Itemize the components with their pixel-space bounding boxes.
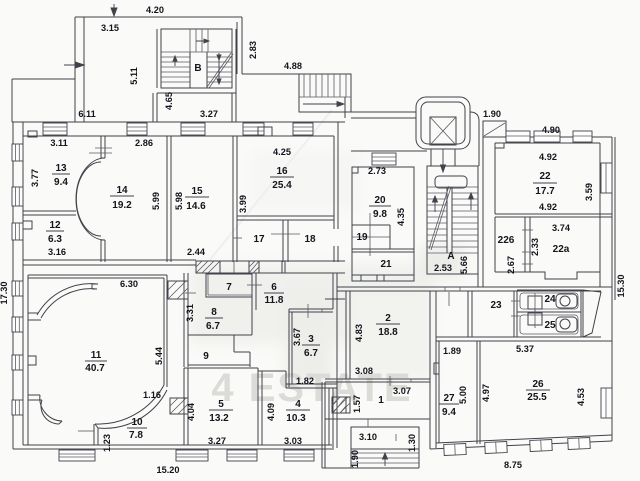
svg-text:2.73: 2.73 [368,166,386,176]
svg-text:1.23: 1.23 [102,434,112,452]
svg-text:B: B [194,63,201,74]
svg-text:25.4: 25.4 [272,180,292,191]
svg-text:19.2: 19.2 [112,200,132,211]
svg-text:3.07: 3.07 [393,386,411,396]
svg-text:2.67: 2.67 [506,256,516,274]
svg-text:3.67: 3.67 [292,328,302,346]
svg-text:27: 27 [443,393,455,404]
svg-text:3.74: 3.74 [552,223,571,233]
svg-text:2: 2 [385,313,391,324]
svg-text:4.53: 4.53 [576,388,586,406]
svg-text:8: 8 [211,307,217,318]
svg-text:5.99: 5.99 [151,192,161,210]
svg-text:4.92: 4.92 [539,202,557,212]
svg-text:4.65: 4.65 [164,92,174,110]
svg-text:40.7: 40.7 [85,363,105,374]
svg-text:3.08: 3.08 [355,366,373,376]
svg-text:4.20: 4.20 [146,5,164,15]
svg-text:6.30: 6.30 [120,279,138,289]
svg-text:15.30: 15.30 [616,275,626,298]
svg-text:A: A [447,251,454,262]
svg-text:5.98: 5.98 [174,192,184,210]
svg-text:3.11: 3.11 [50,138,67,148]
svg-text:25: 25 [544,320,556,331]
svg-text:21: 21 [380,259,392,270]
svg-text:1.16: 1.16 [143,390,161,400]
svg-text:3.16: 3.16 [48,247,66,257]
svg-text:4.92: 4.92 [539,152,557,162]
svg-text:3.15: 3.15 [101,23,119,33]
svg-text:3.31: 3.31 [185,304,195,322]
svg-text:4.04: 4.04 [186,402,196,421]
svg-text:3.77: 3.77 [30,169,40,187]
svg-text:3.99: 3.99 [238,195,248,213]
svg-text:3.03: 3.03 [284,436,302,446]
svg-text:226: 226 [498,235,515,246]
svg-text:1.90: 1.90 [350,450,360,468]
svg-text:4.97: 4.97 [481,384,491,402]
svg-text:1.57: 1.57 [352,395,362,413]
svg-text:22a: 22a [553,244,570,255]
svg-text:4.25: 4.25 [273,147,291,157]
svg-text:4.83: 4.83 [354,324,364,342]
svg-text:9.8: 9.8 [373,209,387,220]
svg-text:5.00: 5.00 [458,386,468,404]
svg-text:3.10: 3.10 [359,432,377,442]
svg-text:2.83: 2.83 [248,41,258,59]
svg-text:13.2: 13.2 [209,413,229,424]
svg-text:9.4: 9.4 [54,177,68,188]
svg-text:6.11: 6.11 [78,109,95,119]
svg-text:17.7: 17.7 [535,186,555,197]
svg-text:2.33: 2.33 [530,238,540,256]
svg-text:4.90: 4.90 [542,125,560,135]
svg-text:25.5: 25.5 [527,392,547,403]
svg-text:16: 16 [276,166,288,177]
svg-text:2.44: 2.44 [187,247,206,257]
svg-text:19: 19 [356,232,368,243]
svg-text:4: 4 [295,399,301,410]
svg-text:6.7: 6.7 [304,348,318,359]
svg-text:1: 1 [378,395,384,406]
svg-text:8.75: 8.75 [504,460,522,470]
svg-text:3.27: 3.27 [200,109,218,119]
svg-text:17.30: 17.30 [0,282,9,305]
svg-text:13: 13 [55,163,67,174]
svg-text:5.11: 5.11 [129,67,139,84]
svg-text:4.09: 4.09 [266,403,276,421]
svg-text:10.3: 10.3 [286,413,306,424]
svg-text:18: 18 [304,234,316,245]
svg-text:15.20: 15.20 [157,465,180,475]
svg-text:18.8: 18.8 [378,327,398,338]
svg-text:9.4: 9.4 [442,407,456,418]
svg-text:3: 3 [308,334,314,345]
svg-text:23: 23 [490,300,502,311]
svg-text:5: 5 [218,399,224,410]
svg-text:4.88: 4.88 [284,61,302,71]
svg-text:22: 22 [539,171,551,182]
svg-text:1.90: 1.90 [483,109,501,119]
svg-text:15: 15 [191,186,203,197]
svg-text:5.44: 5.44 [154,346,164,365]
svg-text:5.66: 5.66 [459,256,469,274]
svg-text:12: 12 [49,220,61,231]
svg-text:9: 9 [203,351,209,362]
svg-text:14: 14 [116,185,128,196]
svg-text:26: 26 [532,379,544,390]
svg-text:4.35: 4.35 [396,208,406,226]
svg-text:20: 20 [374,195,386,206]
svg-text:11: 11 [91,350,102,361]
svg-text:3.59: 3.59 [584,183,594,201]
svg-text:7: 7 [226,282,232,293]
svg-text:1.89: 1.89 [443,346,461,356]
svg-text:10: 10 [131,417,143,428]
svg-text:24: 24 [544,294,556,305]
svg-text:3.27: 3.27 [208,436,226,446]
svg-text:6: 6 [271,282,277,293]
svg-text:2.86: 2.86 [135,138,153,148]
svg-text:1.30: 1.30 [407,434,417,452]
svg-text:14.6: 14.6 [186,201,206,212]
svg-text:6.7: 6.7 [206,321,220,332]
svg-text:7.8: 7.8 [129,430,143,441]
svg-text:2.53: 2.53 [434,263,452,273]
svg-text:11.8: 11.8 [265,295,284,306]
svg-text:6.3: 6.3 [48,234,62,245]
svg-text:5.37: 5.37 [516,344,534,354]
svg-text:17: 17 [253,234,265,245]
svg-text:1.82: 1.82 [296,376,314,386]
